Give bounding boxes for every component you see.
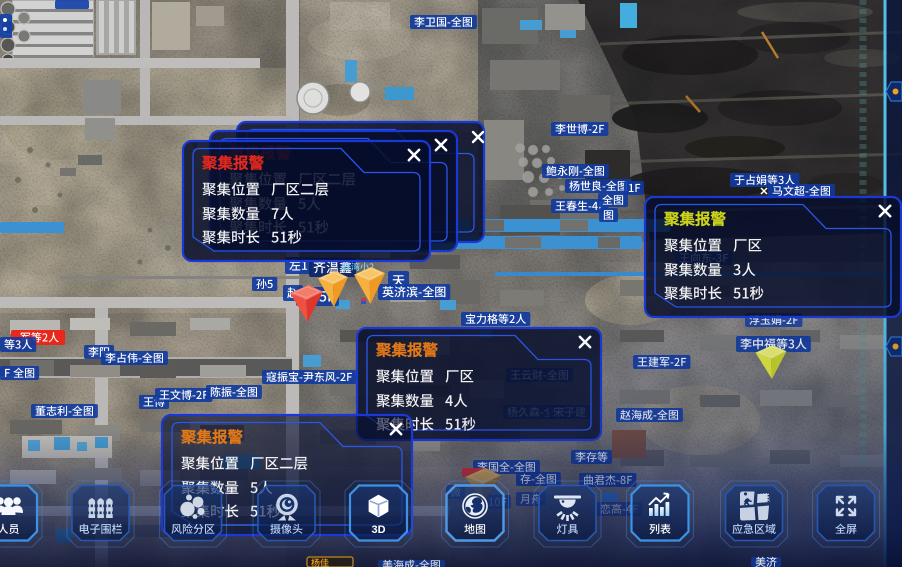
svg-text:3D: 3D <box>371 524 385 536</box>
